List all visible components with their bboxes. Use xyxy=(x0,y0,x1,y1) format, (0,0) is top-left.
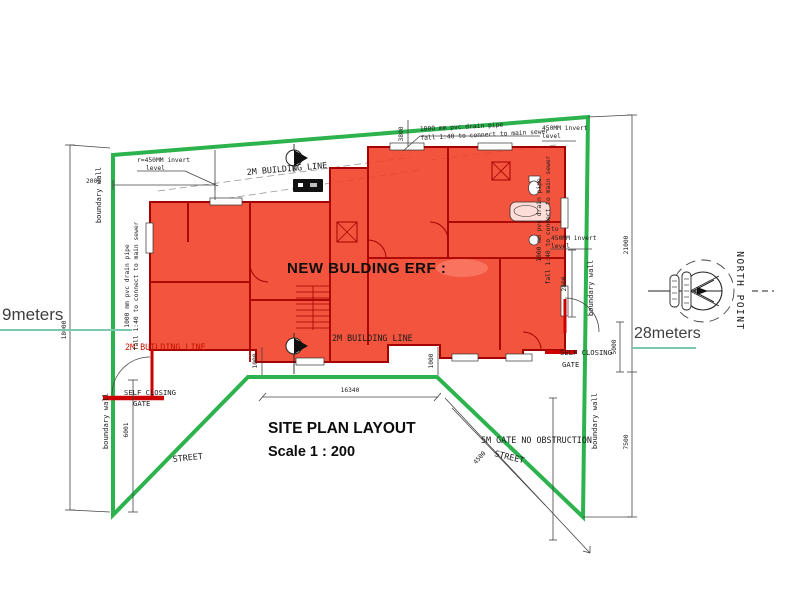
right-measure-annotation: 28meters xyxy=(632,325,696,349)
street-left-label: STREET xyxy=(172,451,203,464)
boundary-wall-left-lower: boundary wall xyxy=(101,393,110,449)
drain-note-left-2: fall 1:40 to connect to main sewer xyxy=(133,221,140,350)
dim-bottom-width: 16340 xyxy=(341,387,360,394)
dim-top-building: 3800 xyxy=(398,126,405,141)
building-label: NEW BULDING ERF : xyxy=(287,260,446,277)
street-right-label: STREET xyxy=(494,448,526,465)
boundary-wall-left-upper: boundary wall xyxy=(94,167,103,223)
left-measure-annotation: 9meters xyxy=(0,305,132,331)
dim-right-gate: 5000 xyxy=(611,339,618,354)
dim-left-top: 2000 xyxy=(86,178,101,185)
dim-right-lower: 7500 xyxy=(623,434,630,449)
north-point-compass-icon xyxy=(648,260,774,322)
building-footprint xyxy=(150,147,565,362)
self-closing-left-1: SELF CLOSING xyxy=(124,388,176,397)
drain-note-right-1: 1000 mm pvc drain pipe xyxy=(536,178,543,262)
invert-top-right-1: 450MM invert xyxy=(542,125,588,132)
plan-title: SITE PLAN LAYOUT xyxy=(268,420,416,437)
kitchen-counter xyxy=(293,179,323,192)
gate-note-label: 5M GATE NO OBSTRUCTION xyxy=(481,435,592,445)
north-point-label: NORTH POINT xyxy=(734,251,745,330)
dim-right-upper: 21000 xyxy=(623,235,630,254)
building-line-bottom-label: 2M BUILDING LINE xyxy=(332,333,413,343)
invert-top-left-1: r=450MM invert xyxy=(137,157,190,164)
self-closing-right-1: SELF CLOSING xyxy=(560,348,612,357)
dim-bottom-left-offset: 1000 xyxy=(252,353,259,368)
invert-top-left-2: level xyxy=(146,165,165,172)
dim-right-building: 2800 xyxy=(561,276,568,291)
dim-bottom-right-offset: 1000 xyxy=(428,353,435,368)
invert-right-2: 450MM invert xyxy=(551,235,597,242)
invert-right-3: level xyxy=(551,243,570,250)
boundary-wall-right-upper: boundary wall xyxy=(586,260,595,316)
self-closing-right-2: GATE xyxy=(562,360,579,369)
drain-note-right-2: fall 1:40 to connect to main sewer xyxy=(545,155,552,284)
building-line-top-label: 2M BUILDING LINE xyxy=(246,160,327,177)
dim-left-gate: 6001 xyxy=(123,422,130,437)
invert-top-right-2: level xyxy=(542,133,561,140)
dim-street-diagonal: 4500 xyxy=(472,450,487,466)
site-plan-drawing: NEW BULDING ERF : SITE PLAN LAYOUT Scale… xyxy=(0,0,800,600)
bathtub xyxy=(510,202,550,221)
self-closing-left-2: GATE xyxy=(133,399,150,408)
invert-right-1: to xyxy=(551,226,559,233)
plan-scale: Scale 1 : 200 xyxy=(268,444,355,460)
site-plan-page: NEW BULDING ERF : SITE PLAN LAYOUT Scale… xyxy=(0,0,800,600)
